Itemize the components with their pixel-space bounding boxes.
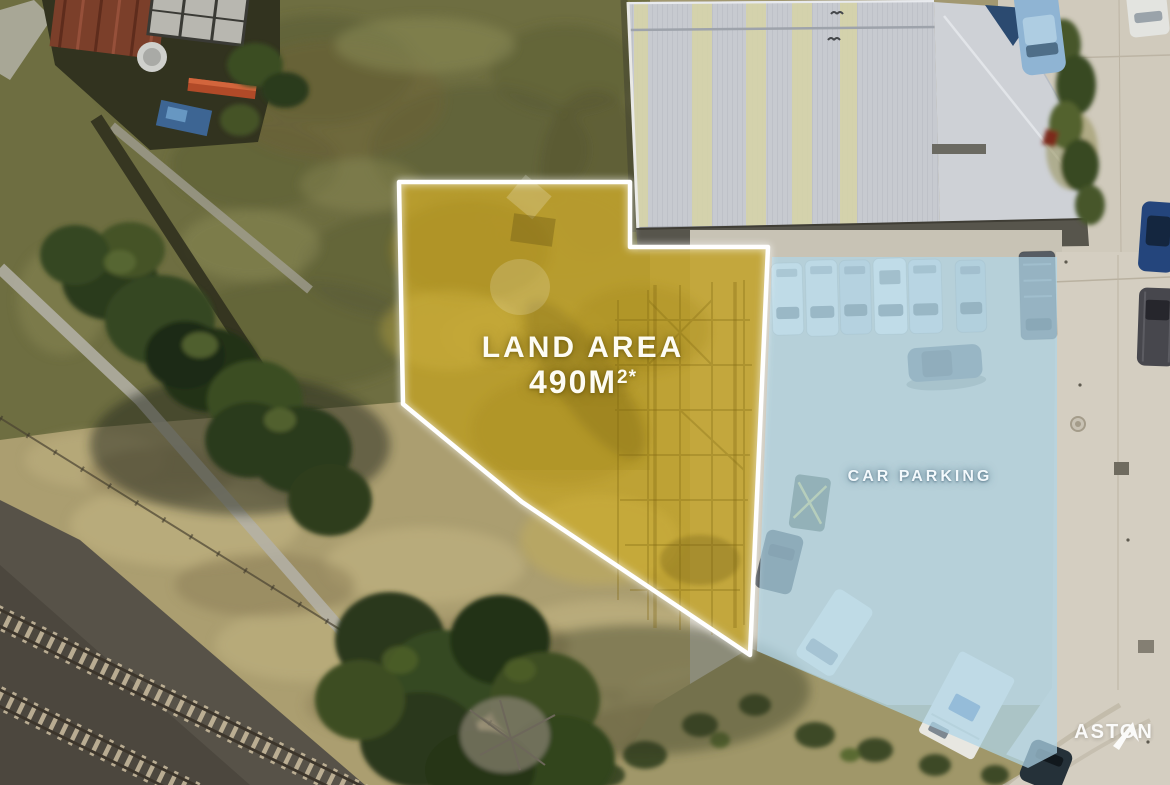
aerial-photo-scene [0, 0, 1170, 785]
warehouse-roof [624, 0, 943, 234]
aerial-property-photo: LAND AREA 490M2* CAR PARKING ASTON [0, 0, 1170, 785]
